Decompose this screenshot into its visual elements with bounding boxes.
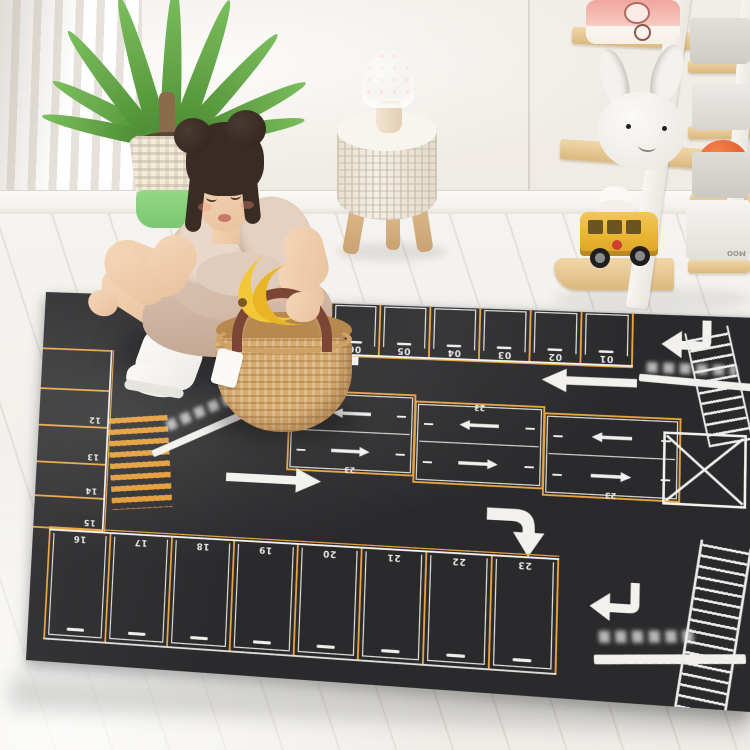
child-blush xyxy=(240,201,254,209)
bin-label: MOO xyxy=(727,249,746,256)
child-blush xyxy=(198,203,212,211)
bus-window xyxy=(607,220,622,234)
bag-ring xyxy=(634,24,651,41)
shelf-board-curved xyxy=(554,258,674,290)
child-hair-bun xyxy=(226,110,266,148)
bus-sign xyxy=(612,240,622,250)
storage-bin-white: MOO xyxy=(686,200,750,260)
shelf-board xyxy=(688,260,750,273)
bus-wheel xyxy=(590,248,610,268)
storage-bin xyxy=(690,18,750,64)
bus-wheel xyxy=(630,246,650,266)
bus-window xyxy=(588,220,603,234)
bus-window xyxy=(626,220,641,234)
child-hair-bun xyxy=(174,118,212,154)
storage-bin xyxy=(692,84,750,130)
child-hand xyxy=(286,292,320,322)
bunny-face-print xyxy=(624,2,650,24)
storage-bin xyxy=(692,152,750,198)
door-frame-line xyxy=(528,0,530,190)
bunny-eye xyxy=(626,124,631,129)
photo-child-on-parking-play-mat: { "scene": { "mat": { "base_color": "#2a… xyxy=(0,0,750,750)
bunny-plush-head xyxy=(598,92,686,170)
bunny-eye xyxy=(662,126,667,131)
child-mouth xyxy=(218,214,231,222)
banana-tip xyxy=(238,298,247,307)
shelf-shadow xyxy=(552,288,750,310)
wall-shadow xyxy=(0,0,90,212)
